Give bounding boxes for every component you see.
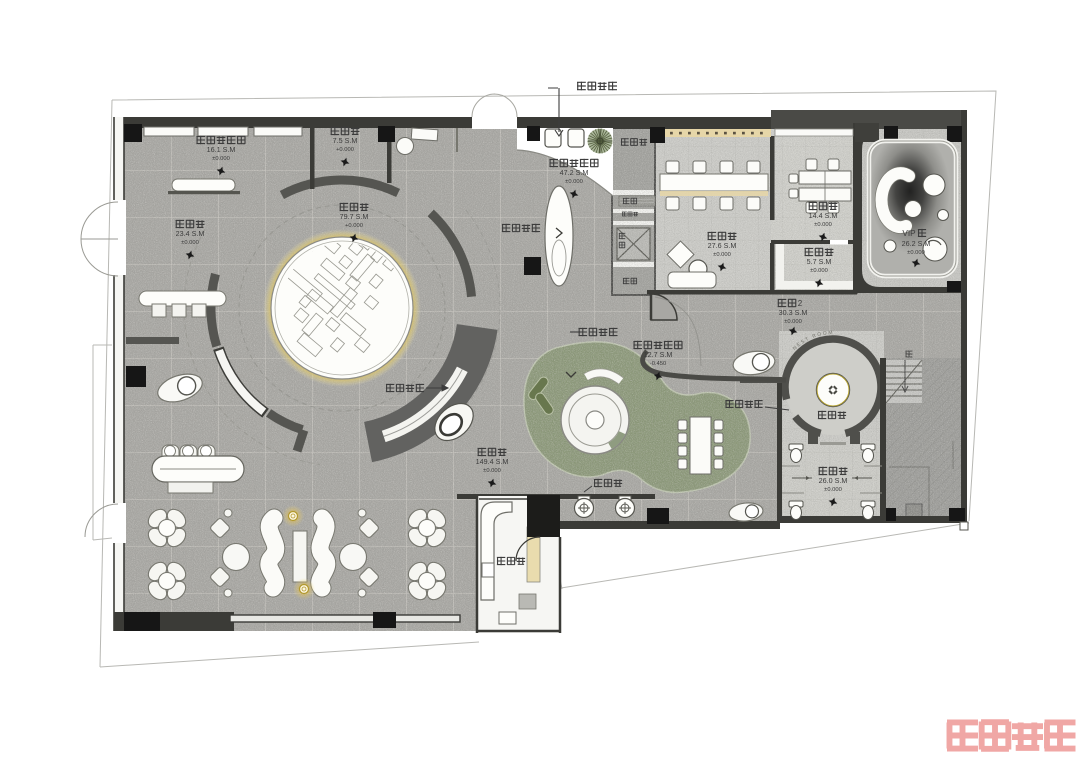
- svg-text:+0.000: +0.000: [345, 223, 363, 229]
- svg-text:±0.000: ±0.000: [181, 240, 199, 246]
- svg-text:±0.000: ±0.000: [814, 222, 832, 228]
- svg-text:16.1 S.M: 16.1 S.M: [207, 145, 236, 154]
- svg-text:±0.000: ±0.000: [824, 487, 842, 493]
- svg-text:±0.000: ±0.000: [810, 268, 828, 274]
- svg-text:149.4 S.M: 149.4 S.M: [476, 457, 509, 466]
- svg-text:±0.000: ±0.000: [784, 319, 802, 325]
- svg-text:-0.450: -0.450: [650, 361, 666, 367]
- svg-text:79.7 S.M: 79.7 S.M: [340, 212, 369, 221]
- svg-text:14.4 S.M: 14.4 S.M: [809, 211, 838, 220]
- svg-text:±0.000: ±0.000: [483, 468, 501, 474]
- svg-text:7.5 S.M: 7.5 S.M: [333, 136, 358, 145]
- svg-text:12.7 S.M: 12.7 S.M: [644, 350, 673, 359]
- svg-text:±0.000: ±0.000: [565, 179, 583, 185]
- svg-text:+0.000: +0.000: [336, 147, 354, 153]
- svg-text:2: 2: [798, 299, 803, 308]
- svg-text:23.4 S.M: 23.4 S.M: [176, 229, 205, 238]
- svg-text:27.6 S.M: 27.6 S.M: [708, 241, 737, 250]
- svg-text:VIP: VIP: [902, 229, 916, 238]
- svg-text:±0.000: ±0.000: [907, 250, 925, 256]
- svg-text:5.7 S.M: 5.7 S.M: [807, 257, 832, 266]
- svg-text:47.2 S.M: 47.2 S.M: [560, 168, 589, 177]
- svg-text:±0.000: ±0.000: [713, 252, 731, 258]
- svg-text:26.2 S.M: 26.2 S.M: [902, 239, 931, 248]
- svg-text:30.3 S.M: 30.3 S.M: [779, 308, 808, 317]
- svg-text:±0.000: ±0.000: [212, 156, 230, 162]
- svg-text:26.0 S.M: 26.0 S.M: [819, 476, 848, 485]
